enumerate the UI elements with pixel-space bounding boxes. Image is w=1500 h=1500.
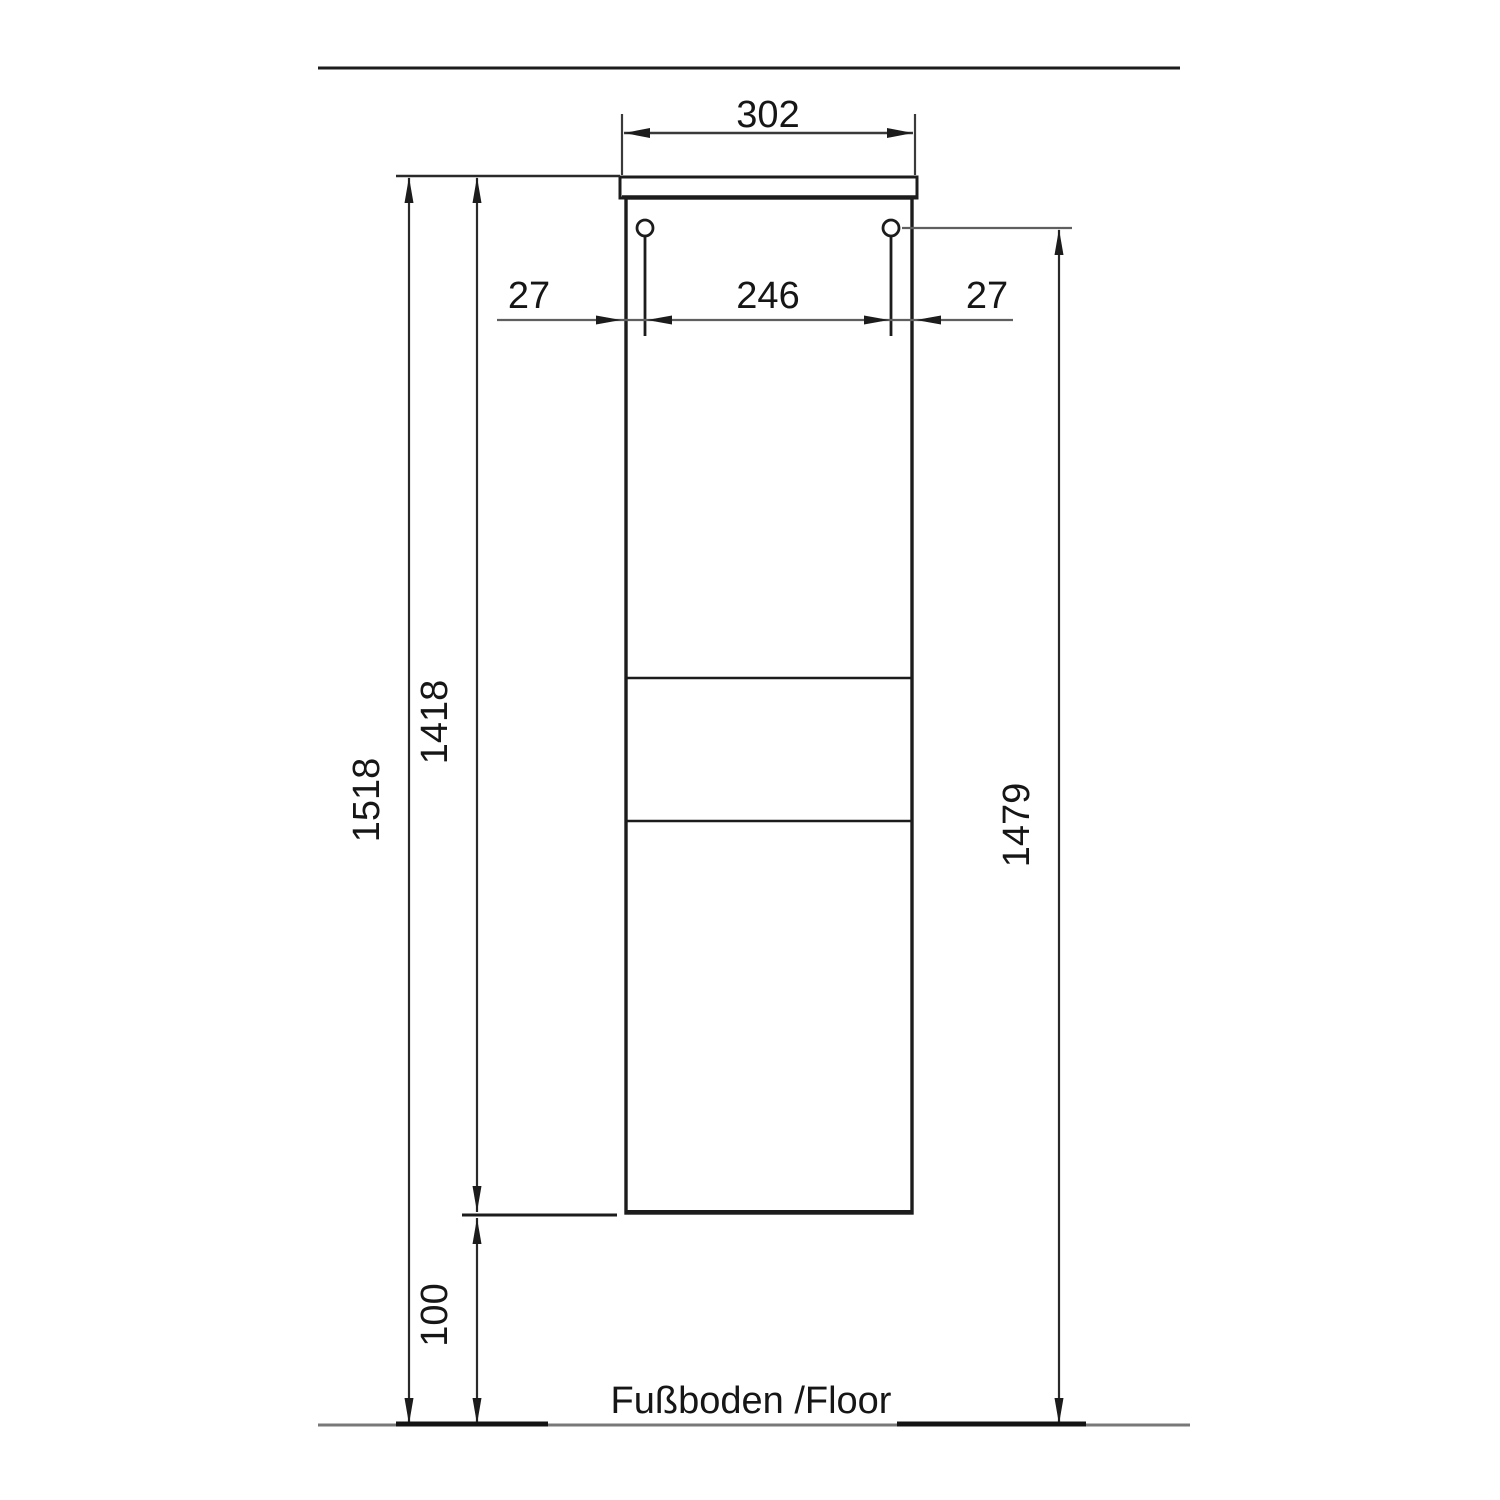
- dim-label-floor-clearance: 100: [414, 1283, 456, 1346]
- cabinet-top-panel: [620, 177, 917, 198]
- arrowhead-left-offset: [596, 316, 621, 325]
- arrowhead-right-offset: [916, 316, 941, 325]
- arrowhead-total-height-bottom: [405, 1398, 414, 1424]
- arrowhead-carcass-height-top: [473, 177, 482, 203]
- arrowhead-floor-clearance-top: [473, 1218, 482, 1244]
- dim-label-right-hole-offset: 27: [966, 275, 1008, 317]
- arrowhead-floor-clearance-bottom: [473, 1398, 482, 1424]
- cabinet-body: [626, 198, 912, 1213]
- dim-label-carcass-height: 1418: [414, 680, 456, 765]
- cabinet-dimension-drawing: 302 27 246 27 1518 1418: [0, 0, 1500, 1500]
- arrowhead-hanger-height-bottom: [1055, 1398, 1064, 1424]
- dim-label-hole-spacing: 246: [736, 275, 799, 317]
- floor-label: Fußboden /Floor: [611, 1380, 892, 1422]
- arrowhead-hanger-height-top: [1055, 229, 1064, 255]
- dim-label-hanger-height: 1479: [996, 783, 1038, 868]
- dim-label-left-hole-offset: 27: [508, 275, 550, 317]
- dim-label-top-width: 302: [736, 94, 799, 136]
- dim-label-total-height: 1518: [346, 758, 388, 843]
- arrowhead-total-height-top: [405, 177, 414, 203]
- arrowhead-carcass-height-bottom: [473, 1186, 482, 1212]
- arrowhead-302-right: [887, 128, 913, 138]
- technical-drawing-page: 302 27 246 27 1518 1418: [0, 0, 1500, 1500]
- mounting-hole-left: [637, 220, 653, 236]
- arrowhead-302-left: [624, 128, 650, 138]
- mounting-hole-right: [883, 220, 899, 236]
